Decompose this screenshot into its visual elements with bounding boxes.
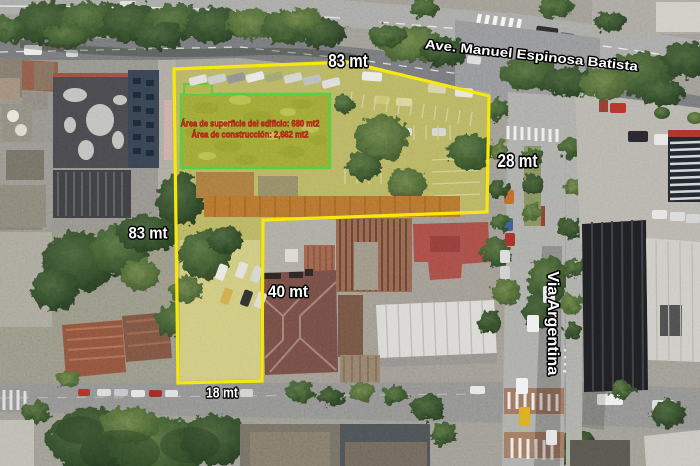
svg-text:Área de superficie del edifici: Área de superficie del edificio: 680 mt2 [181, 118, 320, 129]
svg-text:Via Argentina: Via Argentina [544, 271, 561, 375]
svg-text:83 mt: 83 mt [129, 224, 168, 242]
svg-text:18 mt: 18 mt [206, 385, 238, 402]
svg-text:83 mt: 83 mt [328, 51, 368, 71]
svg-text:Área de construcción: 2,662 mt: Área de construcción: 2,662 mt2 [192, 129, 309, 140]
svg-text:40 mt: 40 mt [268, 283, 308, 301]
svg-text:28 mt: 28 mt [498, 151, 538, 171]
